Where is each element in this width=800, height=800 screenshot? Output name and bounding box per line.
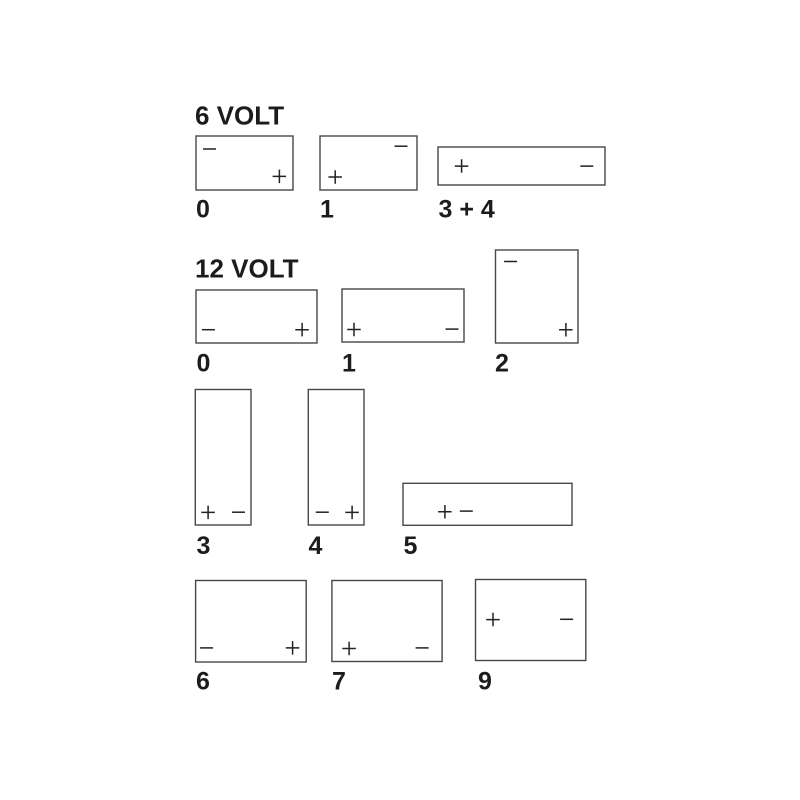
svg-text:4: 4 (309, 532, 323, 560)
svg-text:6: 6 (196, 668, 210, 696)
svg-text:5: 5 (404, 532, 418, 560)
svg-text:7: 7 (332, 668, 346, 696)
svg-text:1: 1 (320, 196, 334, 224)
svg-text:6 VOLT: 6 VOLT (195, 101, 284, 131)
svg-text:0: 0 (196, 196, 210, 224)
svg-text:2: 2 (495, 350, 509, 378)
svg-text:12 VOLT: 12 VOLT (195, 254, 299, 284)
svg-text:0: 0 (197, 350, 211, 378)
svg-text:3 + 4: 3 + 4 (439, 196, 495, 224)
svg-text:1: 1 (342, 350, 356, 378)
svg-text:3: 3 (197, 532, 211, 560)
svg-text:9: 9 (478, 668, 492, 696)
